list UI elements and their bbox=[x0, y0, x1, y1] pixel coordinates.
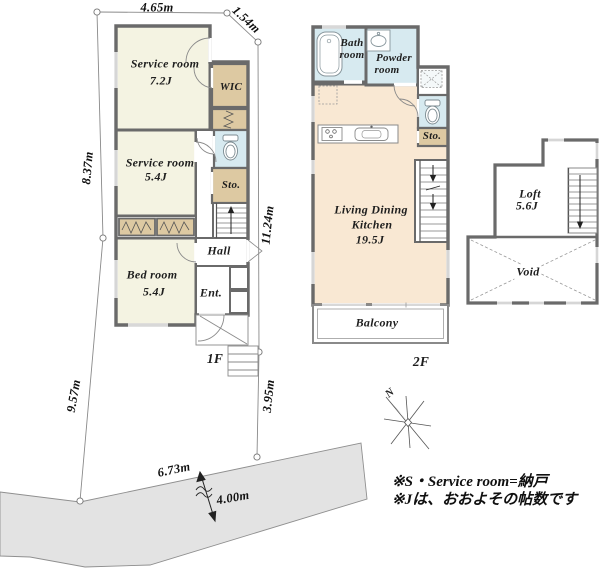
room-label-storage-2f: Sto. bbox=[423, 130, 442, 142]
room-label-ldk-line1: Living Dining bbox=[334, 203, 408, 218]
room-label-service2-area: 5.4J bbox=[145, 170, 167, 185]
entrance-porch bbox=[196, 315, 248, 345]
room-label-service2-name: Service room bbox=[126, 156, 195, 171]
dim-left-upper: 8.37m bbox=[79, 151, 97, 185]
room-label-ldk-line2: Kitchen bbox=[352, 218, 393, 233]
toilet-icon-1f bbox=[223, 135, 238, 160]
floor-label-1f: 1F bbox=[207, 351, 223, 367]
room-label-wic: WIC bbox=[220, 81, 242, 93]
kitchen-counter bbox=[318, 125, 398, 143]
room-label-balcony: Balcony bbox=[356, 316, 399, 331]
floor-label-2f: 2F bbox=[413, 354, 429, 370]
sink-icon bbox=[355, 128, 388, 141]
floor-plan-page: 4.65m 1.54m 8.37m 9.57m 11.24m 3.95m 6.7… bbox=[0, 0, 600, 572]
room-label-service1-area: 7.2J bbox=[150, 74, 172, 89]
room-label-storage-1f: Sto. bbox=[222, 179, 241, 191]
toilet-icon-2f bbox=[425, 100, 440, 124]
closet-left bbox=[119, 219, 155, 236]
bathtub-icon bbox=[317, 32, 342, 76]
room-label-powder-line1: Powder bbox=[376, 52, 412, 64]
exterior-steps bbox=[228, 346, 258, 376]
room-label-loft-area: 5.6J bbox=[516, 199, 538, 214]
room-label-void: Void bbox=[514, 265, 541, 280]
compass-icon bbox=[384, 396, 431, 449]
closet-small bbox=[212, 109, 248, 130]
room-label-ldk-area: 19.5J bbox=[356, 233, 385, 248]
note-line-2: ※Jは、おおよその帖数です bbox=[392, 488, 577, 509]
vanity-sink-icon bbox=[367, 30, 390, 51]
room-label-hall: Hall bbox=[207, 244, 230, 259]
room-label-bedroom-name: Bed room bbox=[127, 268, 178, 283]
room-label-bedroom-area: 5.4J bbox=[143, 285, 165, 300]
stove-icon bbox=[322, 128, 342, 141]
room-label-bath-line2: room bbox=[339, 49, 364, 61]
room-label-entrance: Ent. bbox=[200, 286, 222, 301]
loft-block bbox=[468, 138, 599, 304]
shoe-cabinet-upper bbox=[230, 267, 248, 289]
closet-right bbox=[157, 219, 194, 236]
dim-top-width: 4.65m bbox=[140, 1, 173, 16]
room-label-powder-line2: room bbox=[374, 64, 399, 76]
room-label-bath-line1: Bath bbox=[340, 37, 363, 49]
room-label-service1-name: Service room bbox=[131, 57, 200, 72]
shoe-cabinet-lower bbox=[230, 291, 248, 313]
stairs-loft bbox=[568, 168, 597, 233]
